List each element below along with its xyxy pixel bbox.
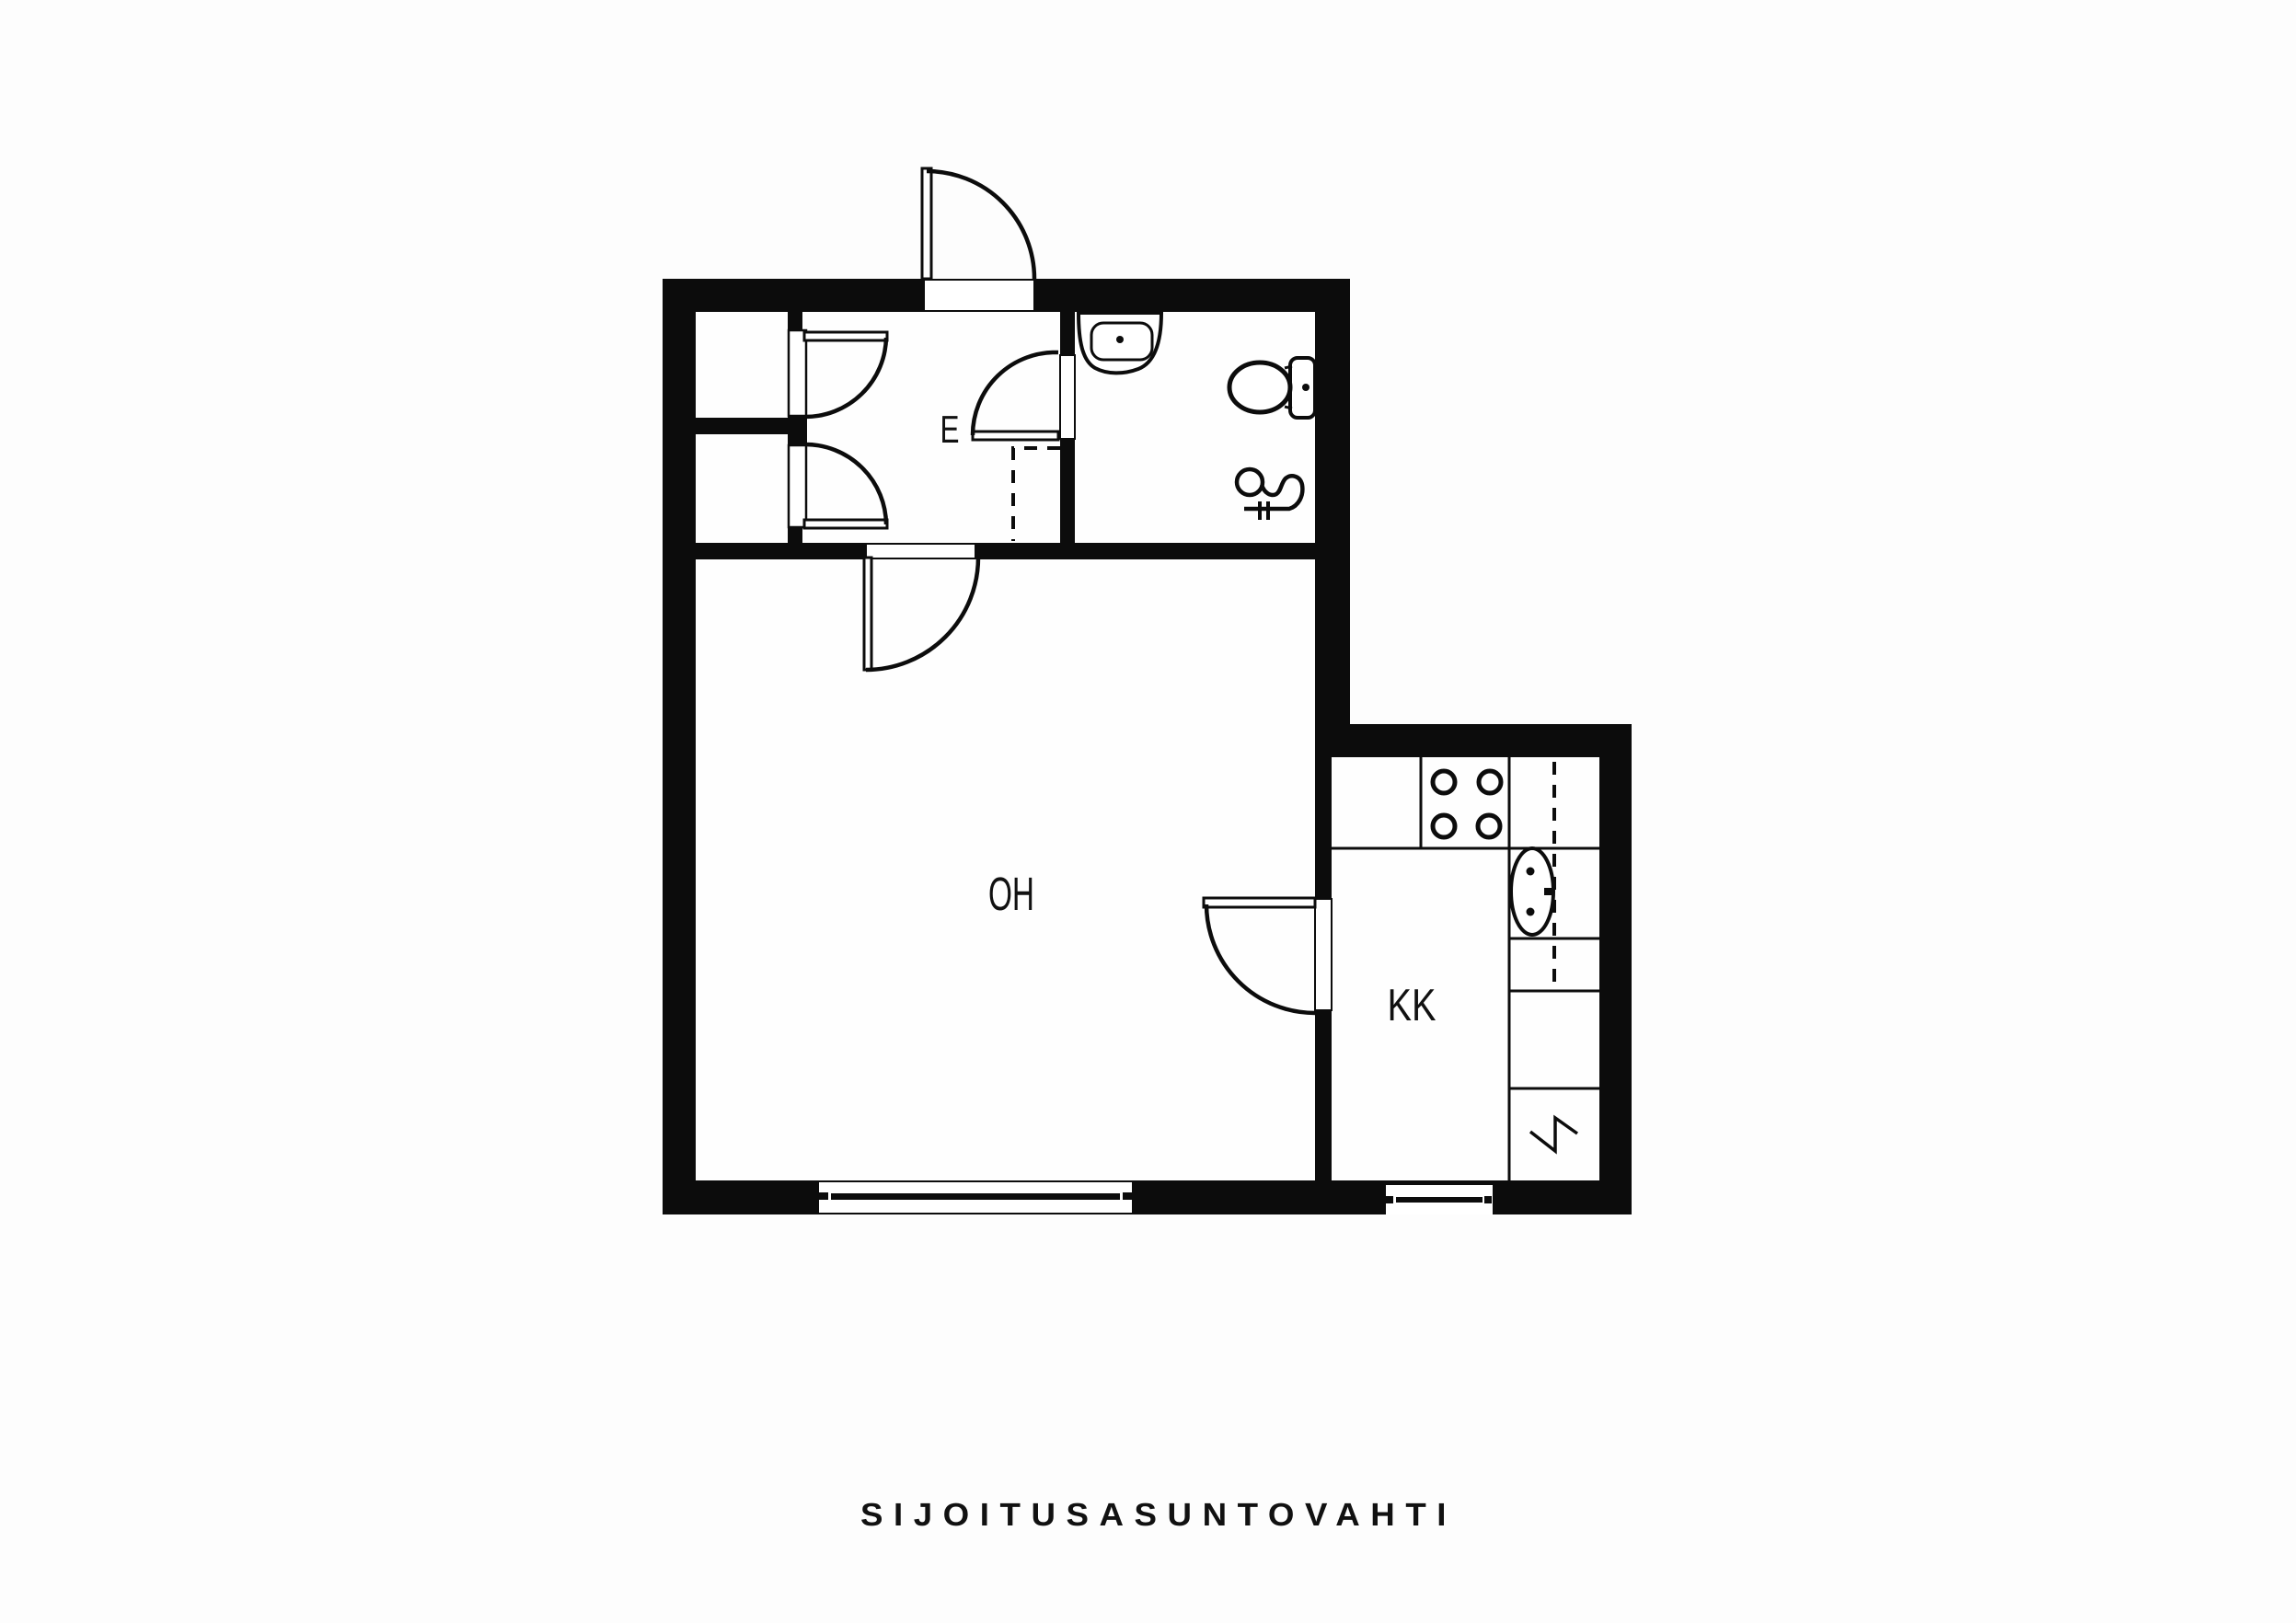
- svg-text:OH: OH: [988, 868, 1034, 920]
- svg-text:SIJOITUSASUNTOVAHTI: SIJOITUSASUNTOVAHTI: [860, 1497, 1457, 1533]
- svg-text:KK: KK: [1388, 981, 1436, 1030]
- svg-text:E: E: [940, 408, 960, 451]
